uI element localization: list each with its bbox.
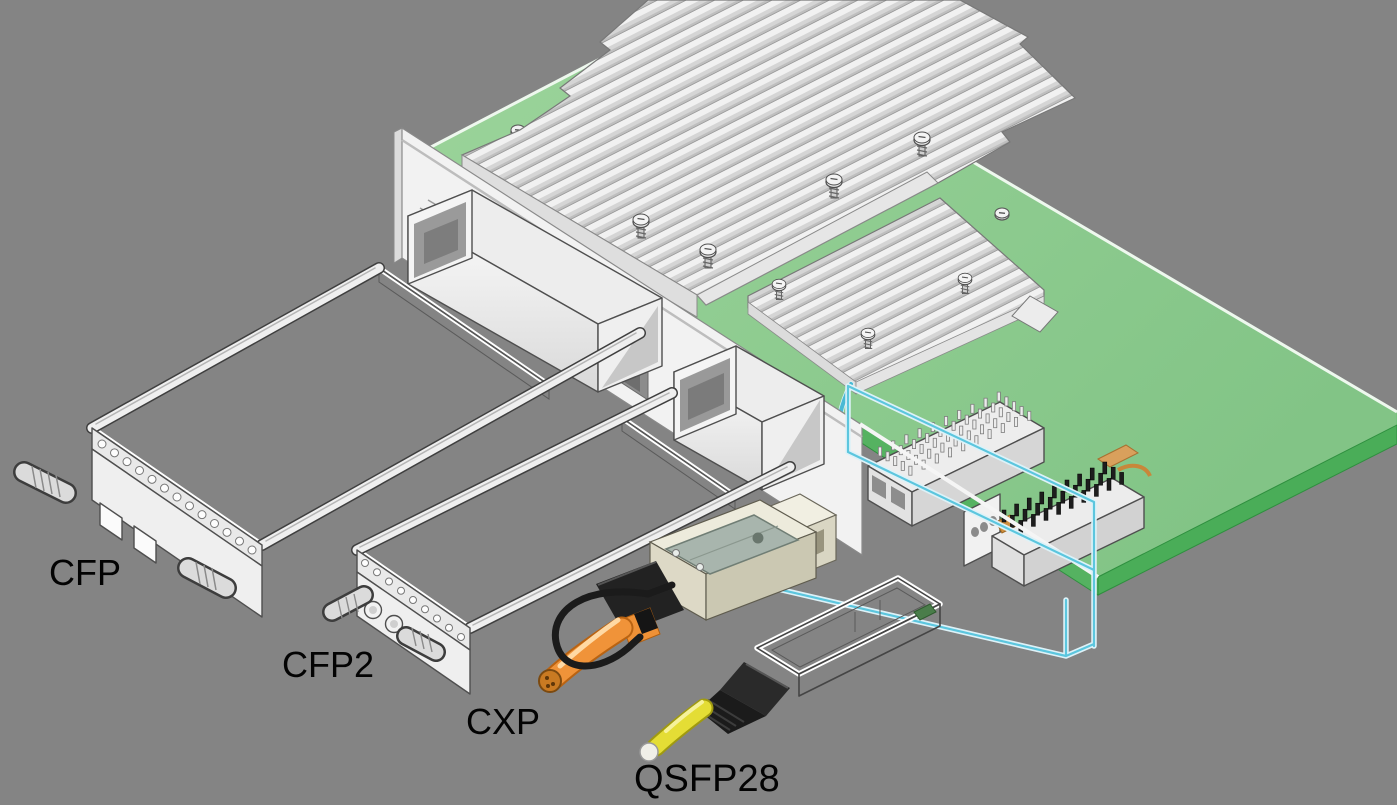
cxp-clip-hole bbox=[753, 533, 764, 544]
label-cxp: CXP bbox=[466, 701, 540, 742]
label-cfp: CFP bbox=[49, 552, 121, 593]
illustration-canvas: CFP CFP2 CXP QSFP28 bbox=[0, 0, 1397, 805]
cxp-cable-tip bbox=[539, 670, 561, 692]
label-cfp2: CFP2 bbox=[282, 644, 374, 685]
board-screw bbox=[995, 208, 1009, 220]
label-qsfp28: QSFP28 bbox=[634, 758, 780, 800]
